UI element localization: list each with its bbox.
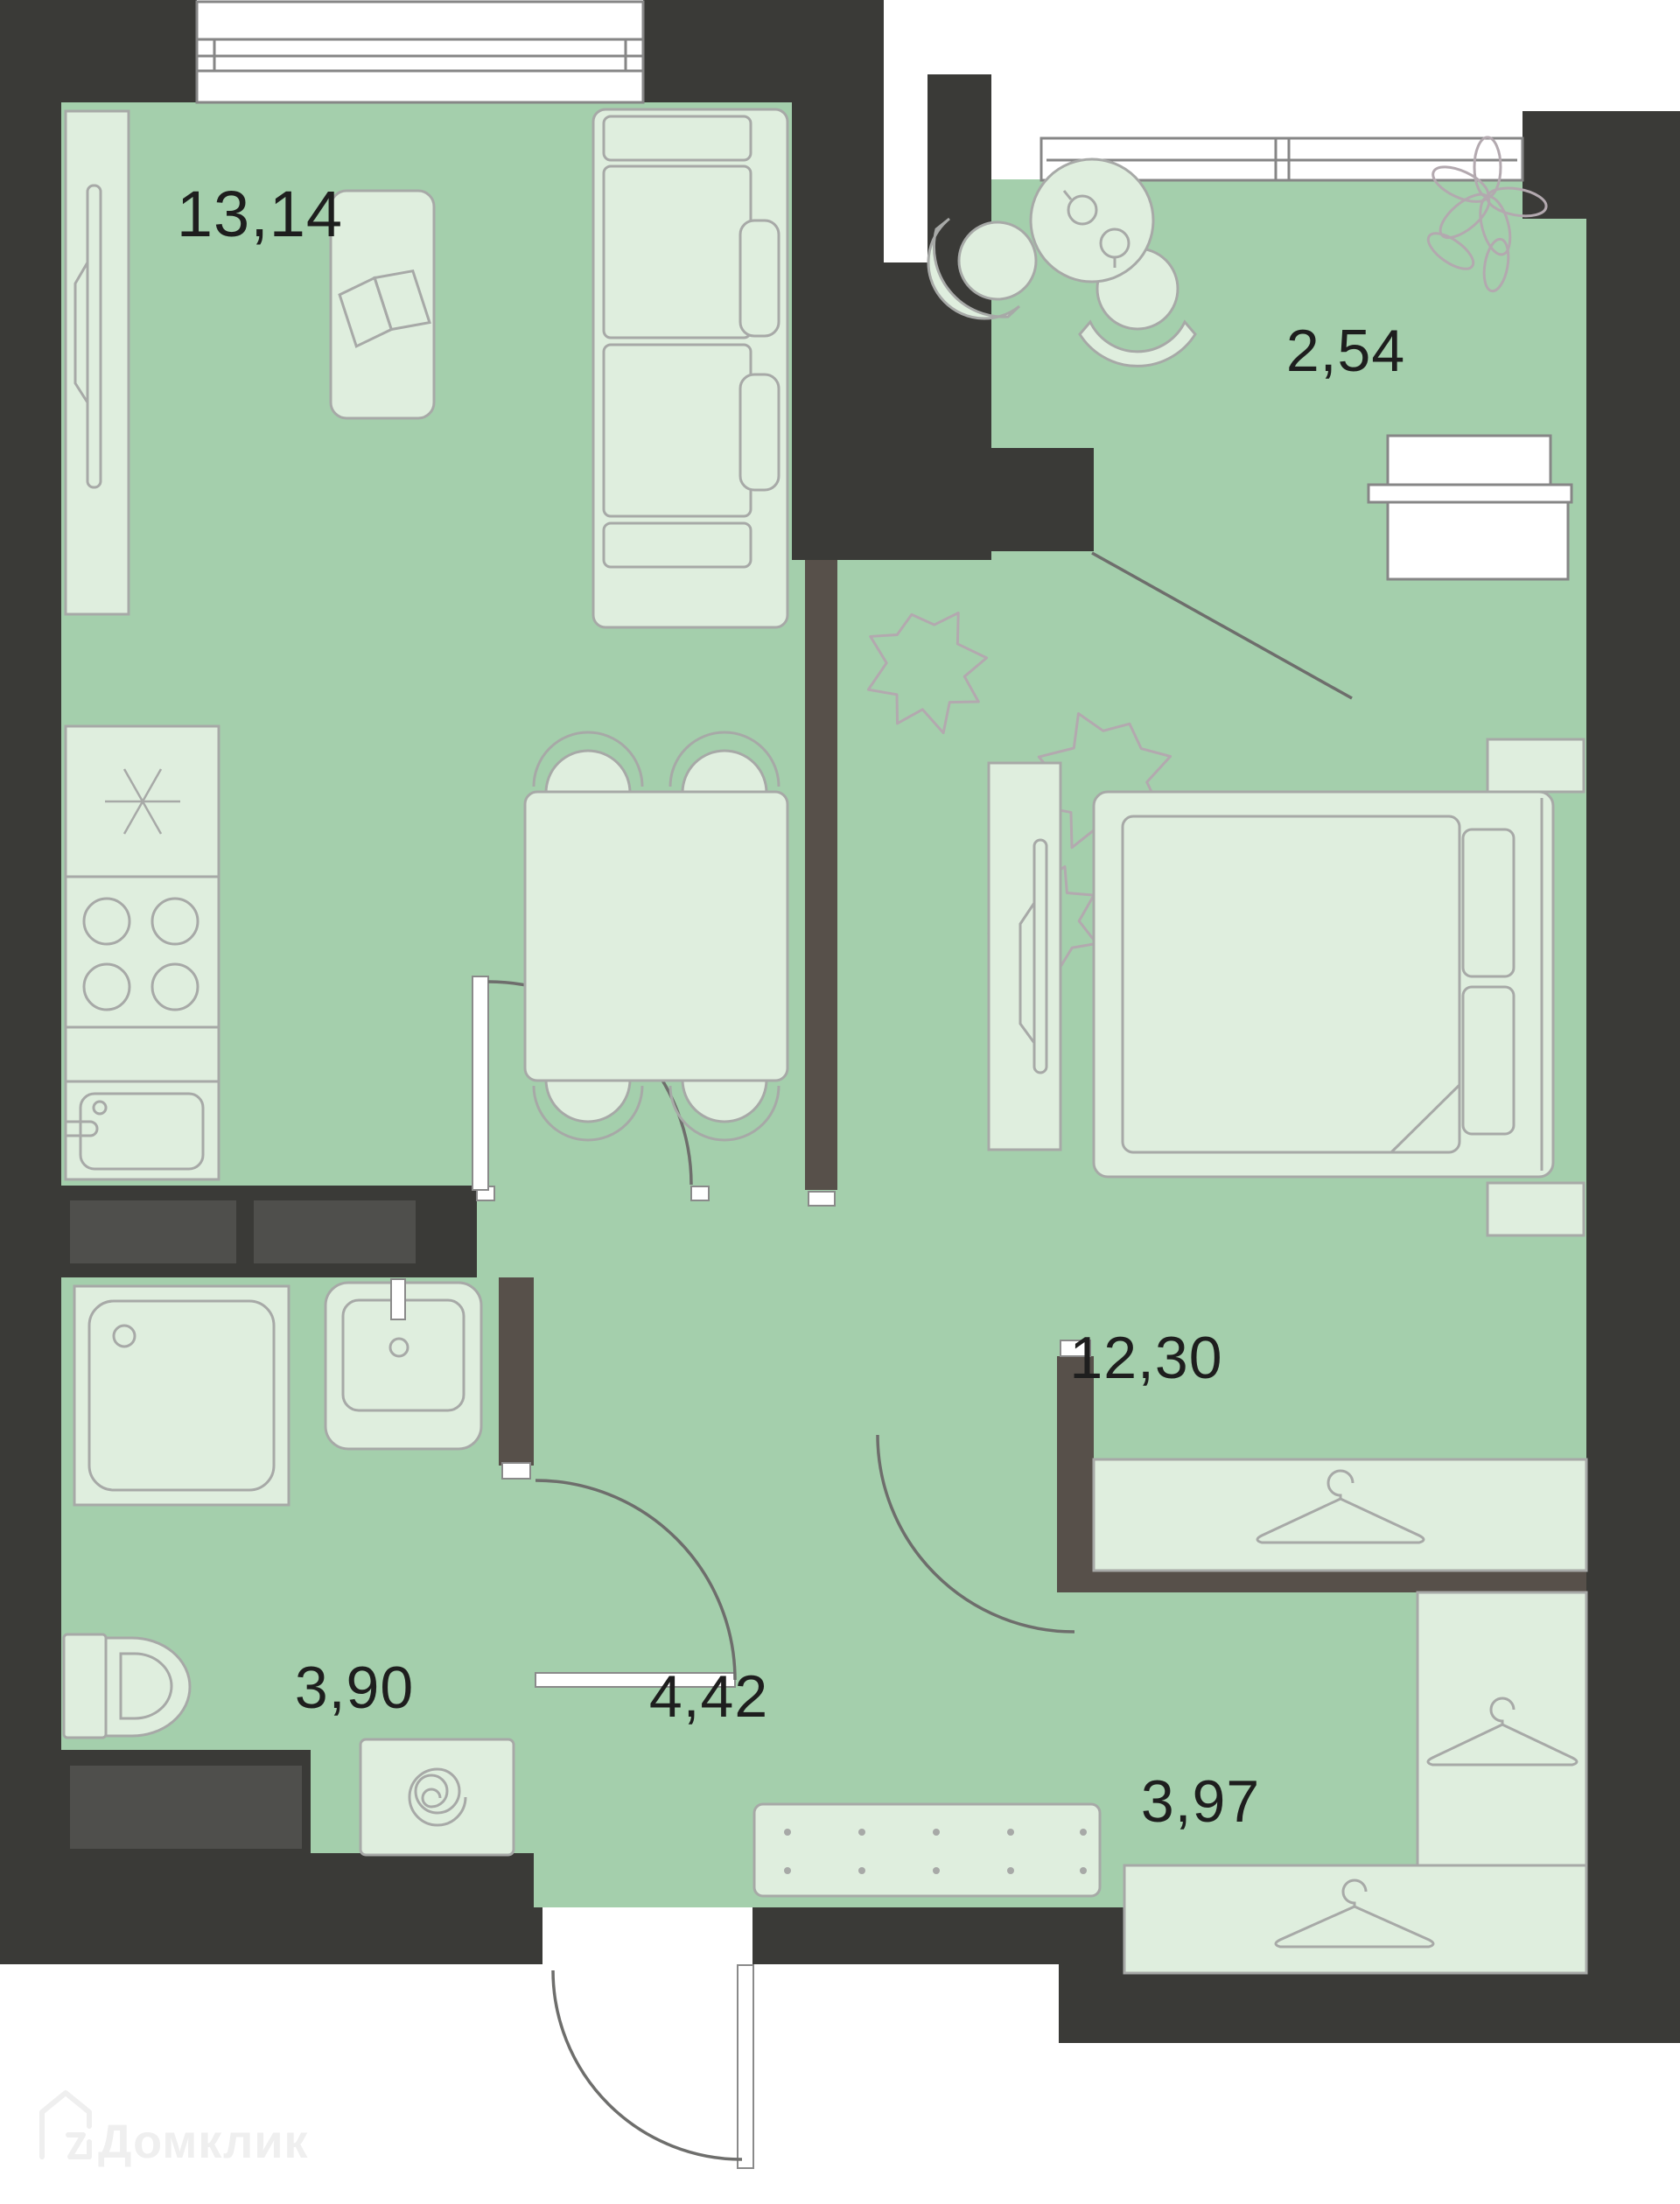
watermark-text: Домклик: [98, 2116, 309, 2168]
wall-balcony-bottom-left: [991, 448, 1094, 551]
dining-set: [525, 732, 787, 1140]
balcony-chair-seat: [959, 222, 1036, 299]
wall-hall-top: [884, 262, 991, 560]
partition-bathroom: [499, 1277, 534, 1466]
coffee-table: [331, 191, 434, 418]
bed: [1094, 792, 1553, 1177]
duct-shaft-2: [254, 1200, 416, 1263]
nightstand: [1487, 739, 1584, 792]
bathroom-sink: [325, 1279, 481, 1449]
bathroom-label: 3,90: [295, 1655, 414, 1721]
hallway-floor: [534, 1186, 1124, 1907]
kitchen-counter: [66, 726, 219, 1179]
cooktop: [66, 877, 219, 1027]
wall-bath-bottom-step: [308, 1853, 534, 1907]
wall-bottom-right: [1059, 1973, 1586, 2043]
watermark: Домклик: [42, 2093, 309, 2168]
shower: [74, 1286, 289, 1505]
watermark-house-icon: [42, 2093, 89, 2157]
duct-shaft-1: [70, 1200, 236, 1263]
doormat: [754, 1804, 1100, 1896]
counter-segment: [66, 1027, 219, 1081]
washing-machine: [360, 1739, 514, 1855]
wall-bottom-left: [61, 1907, 542, 1964]
floor-plan-page: 13,14 2,54 12,30 3,90 4,42 3,97 Домклик: [0, 0, 1680, 2204]
wall-top-left: [0, 0, 197, 102]
tv-cabinet: [66, 111, 129, 614]
entrance-door: [553, 1965, 753, 2168]
dining-table: [525, 792, 787, 1081]
wall-bedroom-wardrobe-bottom: [1057, 1571, 1586, 1592]
pillow: [1463, 829, 1514, 976]
sofa-pillow: [740, 374, 779, 490]
faucet-icon: [391, 1279, 405, 1319]
bedroom-tv-dresser: [989, 763, 1060, 1150]
toilet: [64, 1634, 190, 1738]
pillow: [1463, 987, 1514, 1134]
hallway-label: 4,42: [649, 1663, 768, 1730]
wall-living-right-column: [792, 102, 884, 560]
wall-balcony-right-corner: [1522, 111, 1586, 219]
wardrobe-bottom: [1124, 1865, 1586, 1973]
wardrobe-room-label: 3,97: [1141, 1768, 1260, 1835]
wall-left-outer: [0, 0, 61, 1964]
wall-bottom-mid: [752, 1907, 1059, 1964]
sofa-pillow: [740, 220, 779, 336]
wardrobe-right: [1417, 1592, 1586, 1865]
bedroom-label: 12,30: [1069, 1325, 1222, 1391]
balcony-label: 2,54: [1286, 318, 1405, 384]
nightstand: [1487, 1183, 1584, 1235]
partition-living-bedroom: [805, 560, 837, 1190]
duct-shaft-3: [70, 1766, 302, 1849]
wall-right-outer: [1586, 111, 1680, 2043]
sofa: [593, 109, 787, 627]
balcony-sliding-door: [1368, 436, 1571, 579]
living-window: [197, 2, 643, 102]
bedroom-wardrobe: [1094, 1459, 1586, 1571]
floor-plan-canvas: 13,14 2,54 12,30 3,90 4,42 3,97 Домклик: [0, 0, 1680, 2204]
wall-top-mid: [643, 0, 884, 102]
living-kitchen-label: 13,14: [177, 178, 343, 250]
